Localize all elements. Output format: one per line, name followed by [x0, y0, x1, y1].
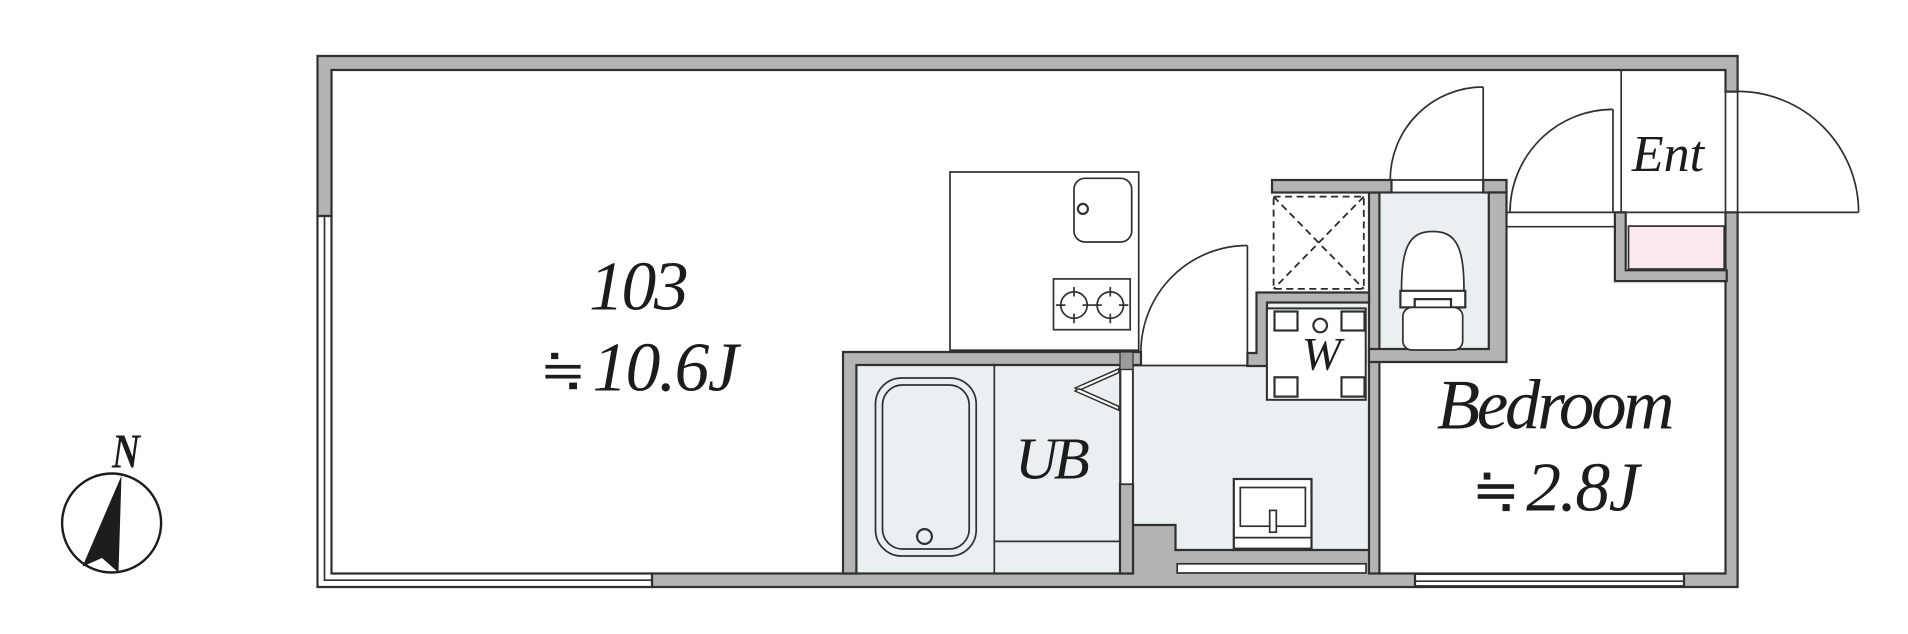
svg-text:103: 103 — [589, 249, 687, 326]
svg-text:N: N — [111, 424, 141, 479]
svg-text:10.6J: 10.6J — [593, 329, 742, 406]
svg-text:Ent: Ent — [1631, 126, 1706, 183]
svg-text:W: W — [1302, 329, 1345, 381]
svg-text:UB: UB — [1015, 425, 1089, 491]
svg-text:2.8J: 2.8J — [1526, 450, 1642, 527]
svg-text:Bedroom: Bedroom — [1437, 366, 1673, 444]
